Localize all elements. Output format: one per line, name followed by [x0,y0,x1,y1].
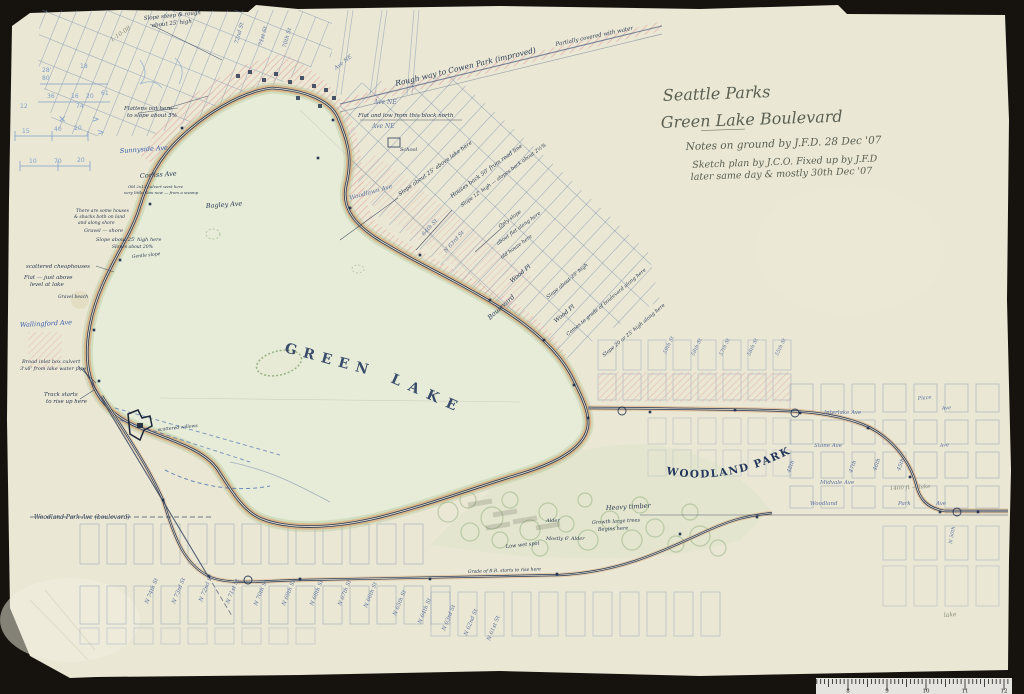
map-annotation: 3'x6' from lake water pipe [20,366,86,372]
building [318,104,322,108]
map-annotation: 20 [86,93,94,100]
map-annotation: 70 [54,158,62,165]
ruler-number: 11 [962,689,969,694]
map-annotation: Gravel beach [58,294,88,300]
survey-station-mark [332,119,335,122]
survey-station-mark [573,384,576,387]
map-annotation: Mostly 6' Alder [545,536,585,542]
map-annotation: to slope about 5% [127,113,177,119]
survey-station-mark [556,573,559,576]
survey-station-mark [679,533,682,536]
map-annotation: scattered cheaphouses [26,264,90,270]
map-annotation: > [97,128,105,138]
map-annotation: 36 [47,93,55,100]
building [300,76,304,80]
map-annotation: 20 [77,157,85,164]
survey-station-mark [429,578,432,581]
survey-station-mark [93,329,96,332]
map-annotation: There are some houses [76,208,130,214]
map-annotation: Ave NE [371,123,395,130]
map-annotation: Interlake Ave [823,410,862,416]
building [274,72,278,76]
map-annotation: Alder [545,518,560,524]
survey-station-mark [909,476,912,479]
ruler-number: 10 [923,689,930,694]
map-canvas: Rough way to Cowen Park (improved)Partia… [0,0,1024,694]
map-annotation: × [58,114,66,125]
ruler-number: 12 [1001,689,1008,694]
survey-station-mark [734,409,737,412]
survey-station-mark [543,339,546,342]
map-annotation: Ave [939,442,950,449]
building [236,74,240,78]
survey-station-mark [649,411,652,414]
map-annotation: School [400,147,417,153]
map-annotation: 16 [71,93,79,100]
survey-station-mark [939,511,942,514]
map-annotation: Ave [941,405,952,412]
map-annotation: 28' [42,67,52,74]
survey-station-mark [867,427,870,430]
building [288,80,292,84]
photographed-map: Rough way to Cowen Park (improved)Partia… [0,0,1024,694]
map-annotation: Stone Ave [814,443,843,449]
map-annotation: Ave [935,501,947,507]
map-annotation: Gravel — shore [84,228,123,234]
map-annotation: Park [897,501,911,507]
map-annotation: 12 [20,103,28,110]
map-annotation: 74 [76,103,84,110]
survey-station-mark [299,578,302,581]
map-annotation: 40 [54,126,62,133]
building [324,88,328,92]
map-annotation: 61 [101,90,109,97]
map-annotation: Flat — just above [23,275,73,281]
map-annotation: Flattens out here [123,106,173,112]
map-annotation: level at lake [30,282,64,288]
map-annotation: Woodland [810,501,838,507]
map-annotation: Midvale Ave [819,480,855,486]
photo-ruler: 89101112 [816,678,1012,694]
survey-station-mark [149,203,152,206]
map-annotation: 10 [29,158,37,165]
building [312,84,316,88]
map-annotation: Broad inlet box culvert [21,359,81,365]
survey-station-mark [419,254,422,257]
survey-station-mark [119,259,122,262]
map-annotation: Track starts [44,392,78,398]
title-line-1: Seattle Parks [663,82,771,105]
ruler-number: 9 [885,689,889,694]
survey-station-mark [349,207,352,210]
map-annotation: > [92,115,100,125]
map-annotation: 18 [80,63,88,70]
ruler-number: 8 [846,689,850,694]
map-annotation: 20 [74,125,82,132]
map-annotation: 80 [42,75,50,82]
survey-station-mark [162,499,165,502]
map-annotation: and along shore [78,220,115,226]
survey-station-mark [181,127,184,130]
building [262,78,266,82]
map-annotation: lake [944,611,958,619]
map-annotation: Ave NE [373,99,397,106]
survey-station-mark [317,157,320,160]
building [332,96,336,100]
map-annotation: to rise up here [46,399,88,405]
building [248,70,252,74]
map-annotation: Woodland Park Ave (boulevard) [34,514,130,521]
map-annotation: Slopes about 20% [112,244,153,250]
survey-station-mark [977,511,980,514]
building [137,423,143,428]
survey-station-mark [98,380,101,383]
map-annotation: Old 2x12 culvert west here [128,184,184,189]
building [296,96,300,100]
map-annotation: very little flow now — from a swamp [124,190,199,195]
map-annotation: & shacks both on land [74,214,125,220]
survey-station-mark [756,516,759,519]
map-annotation: 15 [22,128,30,135]
map-annotation: Flat and low from this block north [357,113,454,119]
survey-station-mark [587,417,590,420]
survey-station-mark [489,299,492,302]
map-annotation: Slope about 25' high here [96,237,162,243]
